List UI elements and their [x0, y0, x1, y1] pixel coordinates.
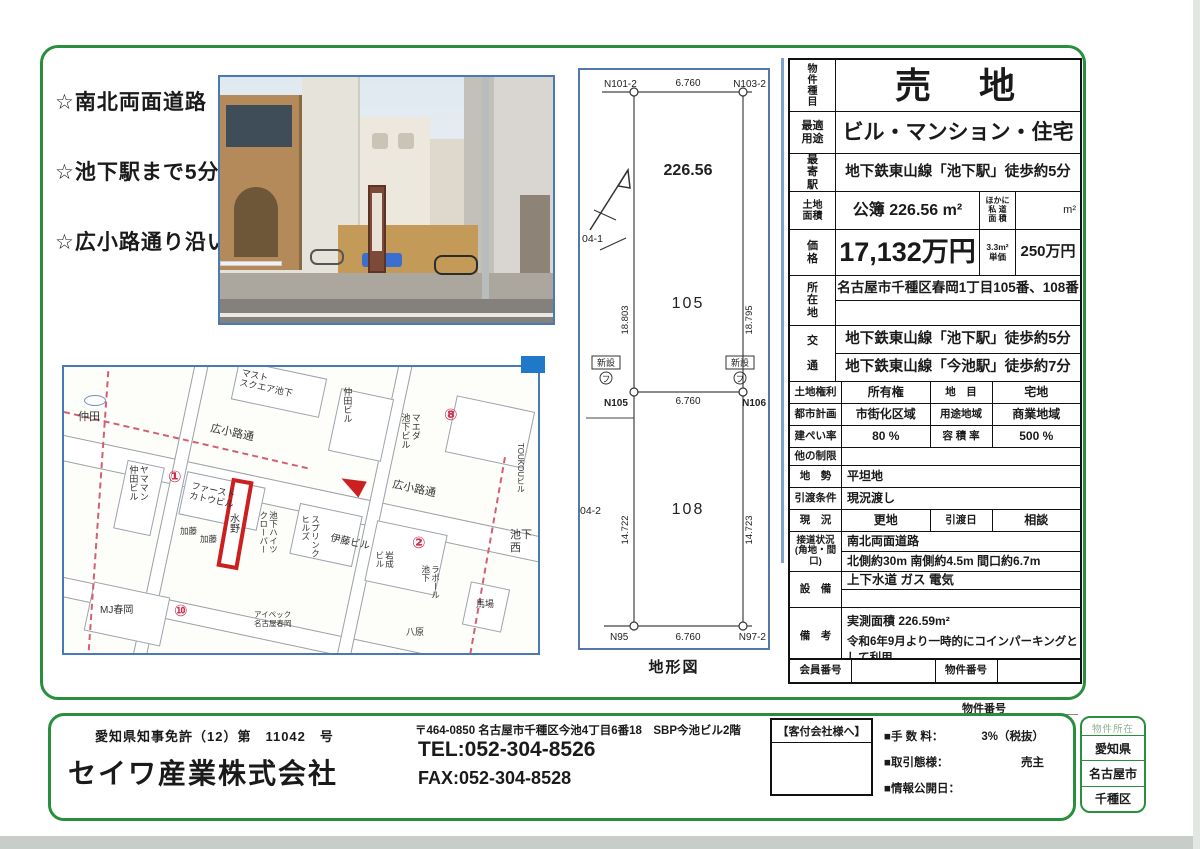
map-label: 加藤	[200, 535, 217, 545]
spec-label: 最 寄 駅	[790, 154, 836, 191]
scan-edge	[0, 836, 1200, 849]
license-number: 愛知県知事免許（12）第 11042 号	[95, 726, 334, 745]
spec-label: 最適 用途	[790, 112, 836, 153]
spec-label: 土地権利	[790, 382, 842, 403]
diagram-caption: 地形図	[578, 656, 770, 677]
spec-label: 現 況	[790, 510, 842, 531]
map-label: ラポール 池下	[420, 565, 440, 599]
property-number-value	[998, 660, 1081, 682]
property-location-city: 名古屋市	[1082, 760, 1144, 785]
map-label: アイペック 名古屋春岡	[254, 611, 292, 628]
photo-bicycle	[310, 249, 344, 265]
utilities: 上下水道 ガス 電気	[842, 572, 1080, 590]
feature-item: ☆南北両面道路	[55, 86, 230, 116]
dim-mid: 6.760	[675, 396, 700, 407]
location-address-blank	[836, 301, 1080, 325]
spec-sublabel: 3.3m² 単価	[980, 230, 1016, 275]
road-frontage: 南北両面道路	[842, 532, 1080, 552]
property-type: 売 地	[836, 60, 1080, 111]
spec-label: 引渡条件	[790, 488, 842, 509]
dim-right: 18.795	[744, 305, 755, 334]
map-label: ⑩	[174, 603, 188, 621]
company-name: セイワ産業株式会社	[68, 752, 338, 792]
map-label: 仲田	[78, 411, 100, 424]
photo-bicycle	[434, 255, 478, 275]
block-label: 04-1	[582, 233, 603, 245]
shinsetsu-label: 新設	[731, 357, 749, 368]
photo-entrance	[234, 187, 278, 257]
dim-left: 18.803	[620, 305, 631, 334]
spec-sublabel: ほかに 私 道 面 積	[980, 192, 1016, 229]
spec-label: 建ぺい率	[790, 426, 842, 447]
fee-block: ■手 数 料： 3%（税抜） ■取引態様： 売主 ■情報公開日：	[884, 728, 1044, 806]
member-number-row: 会員番号 物件番号	[788, 658, 1082, 684]
map-label: 仲田ビル	[342, 387, 352, 423]
area-value: 226.56	[664, 162, 713, 179]
property-location-title: 物件所在	[1082, 718, 1144, 735]
spec-label: 物 件 種 目	[790, 60, 836, 111]
remarks-line: 実測面積 226.59m²	[847, 612, 1080, 629]
company-address: 〒464-0850 名古屋市千種区今池4丁目6番18 SBP今池ビル2階	[415, 722, 741, 738]
map-label: 池下ハイツ クローバー	[258, 511, 278, 554]
agent-note-box: 【客付会社様へ】	[770, 718, 873, 796]
map-label: 広小路通	[391, 479, 437, 501]
map-label: ヤママン 仲田ビル	[128, 465, 149, 501]
land-rights: 所有権	[842, 382, 931, 403]
map-label: 水野	[227, 513, 239, 533]
photo-window	[226, 105, 292, 147]
best-use: ビル・マンション・住宅	[836, 112, 1080, 153]
scan-edge	[1193, 0, 1200, 849]
survey-diagram-svg: N101-2 6.760 N103-2 226.56 105 18.803 18…	[580, 70, 768, 648]
photo-lane-marking	[220, 313, 555, 317]
fee-value: 3%（税抜）	[981, 728, 1044, 744]
deal-type-label: ■取引態様：	[884, 754, 948, 770]
map-label: スプリンク ヒルズ	[300, 515, 320, 558]
price: 17,132万円	[836, 230, 980, 275]
point-label: N105	[604, 398, 628, 409]
spec-label: 価 格	[790, 230, 836, 275]
map-label: 広小路通	[209, 423, 255, 445]
map-blue-marker	[521, 356, 545, 373]
terrain: 平坦地	[842, 466, 1080, 487]
spec-label: 設 備	[790, 572, 842, 607]
photo-road	[220, 299, 555, 325]
fee-label: ■手 数 料：	[884, 728, 943, 744]
spec-label: 所 在 地	[790, 276, 836, 325]
location-address: 名古屋市千種区春岡1丁目105番、108番	[836, 276, 1080, 301]
handover-condition: 現況渡し	[842, 488, 1080, 509]
other-restrictions	[842, 448, 1080, 465]
spec-label: 交 通	[790, 326, 836, 381]
photo-guardrail	[220, 261, 282, 266]
photo-mid-building	[430, 139, 464, 237]
floor-area-ratio: 500 %	[993, 426, 1081, 447]
access-line: 地下鉄東山線「池下駅」徒歩約5分	[836, 326, 1080, 354]
spec-label: 接道状況 (角地・間口)	[790, 532, 842, 571]
building-coverage: 80 %	[842, 426, 931, 447]
deal-type-value: 売主	[1021, 754, 1044, 770]
city-planning: 市街化区域	[842, 404, 931, 425]
point-label: N106	[742, 398, 766, 409]
feature-item: ☆広小路通り沿い	[55, 226, 230, 256]
member-number-value	[852, 660, 936, 682]
nearest-station: 地下鉄東山線「池下駅」徒歩約5分	[836, 154, 1080, 191]
dim-bottom: 6.760	[675, 632, 700, 643]
shinsetsu-label: 新設	[597, 357, 615, 368]
dim-right: 14.723	[744, 515, 755, 544]
photo-window	[372, 133, 388, 149]
map-label: 馬場	[476, 599, 494, 609]
map-route-badge	[84, 395, 106, 406]
release-date-label: ■情報公開日：	[884, 780, 960, 796]
property-location-ward: 千種区	[1082, 786, 1144, 811]
point-label: N101-2	[604, 79, 637, 90]
land-area: 公簿 226.56 m²	[836, 192, 980, 229]
map-label: 加藤	[180, 527, 197, 537]
private-road-area: m²	[1016, 192, 1080, 229]
spec-label: 都市計画	[790, 404, 842, 425]
feature-list: ☆南北両面道路 ☆池下駅まで5分 ☆広小路通り沿い	[55, 86, 230, 296]
point-label: N95	[610, 632, 629, 643]
property-location-pref: 愛知県	[1082, 735, 1144, 760]
area-map: 仲田マスト スクエア池下広小路通仲田ビルマエダ 池下ビル⑧TOUKOUビル広小路…	[62, 365, 540, 655]
block-label: 04-2	[580, 505, 601, 517]
spec-label: 地 勢	[790, 466, 842, 487]
photo-sidewalk	[220, 273, 555, 299]
spec-sublabel: 引渡日	[931, 510, 993, 531]
map-label: ⑧	[444, 407, 458, 425]
photo-sign-panel	[372, 193, 382, 251]
fu-mark: フ	[736, 374, 745, 384]
dim-top: 6.760	[675, 78, 700, 89]
photo-utility-pole	[482, 77, 489, 299]
unit-price: 250万円	[1016, 230, 1080, 275]
land-category: 宅地	[993, 382, 1081, 403]
lot-number: 105	[672, 295, 705, 312]
map-label: TOUKOUビル	[516, 443, 525, 493]
dim-left: 14.722	[620, 515, 631, 544]
flyer-sheet: ☆南北両面道路 ☆池下駅まで5分 ☆広小路通り沿い	[0, 0, 1200, 849]
spec-label: 他の制限	[790, 448, 842, 465]
spec-table: 物 件 種 目 売 地 最適 用途 ビル・マンション・住宅 最 寄 駅 地下鉄東…	[788, 58, 1082, 668]
road-frontage-detail: 北側約30m 南側約4.5m 間口約6.7m	[842, 552, 1080, 571]
photo-window	[398, 133, 414, 149]
spec-label: 土地 面積	[790, 192, 836, 229]
map-label: 岩成 ビル	[374, 551, 394, 568]
property-photo	[218, 75, 555, 325]
scan-artifact-line	[781, 58, 784, 563]
lot-number: 108	[672, 501, 705, 518]
access-line: 地下鉄東山線「今池駅」徒歩約7分	[836, 354, 1080, 381]
map-label: ①	[168, 469, 182, 487]
map-label: 八原	[406, 627, 424, 637]
photo-entrance	[520, 195, 550, 277]
map-label: 池下西	[510, 529, 538, 554]
utilities-blank	[842, 590, 1080, 607]
map-label: マエダ 池下ビル	[400, 413, 421, 449]
fu-mark: フ	[602, 374, 611, 384]
company-fax: FAX:052-304-8528	[418, 768, 571, 789]
company-tel: TEL:052-304-8526	[418, 738, 595, 762]
spec-sublabel: 用途地域	[931, 404, 993, 425]
current-status: 更地	[842, 510, 931, 531]
map-label: MJ春岡	[100, 605, 133, 617]
handover-date: 相談	[993, 510, 1081, 531]
feature-item: ☆池下駅まで5分	[55, 156, 230, 186]
spec-sublabel: 地 目	[931, 382, 993, 403]
survey-diagram: N101-2 6.760 N103-2 226.56 105 18.803 18…	[578, 68, 770, 650]
agent-note-title: 【客付会社様へ】	[772, 720, 871, 743]
property-number-label: 物件番号	[936, 660, 998, 682]
map-label: ②	[412, 535, 426, 553]
zoning: 商業地域	[993, 404, 1081, 425]
point-label: N103-2	[733, 79, 766, 90]
property-location-box: 物件所在 愛知県 名古屋市 千種区	[1080, 716, 1146, 813]
spec-sublabel: 容 積 率	[931, 426, 993, 447]
member-number-label: 会員番号	[790, 660, 852, 682]
point-label: N97-2	[739, 632, 767, 643]
